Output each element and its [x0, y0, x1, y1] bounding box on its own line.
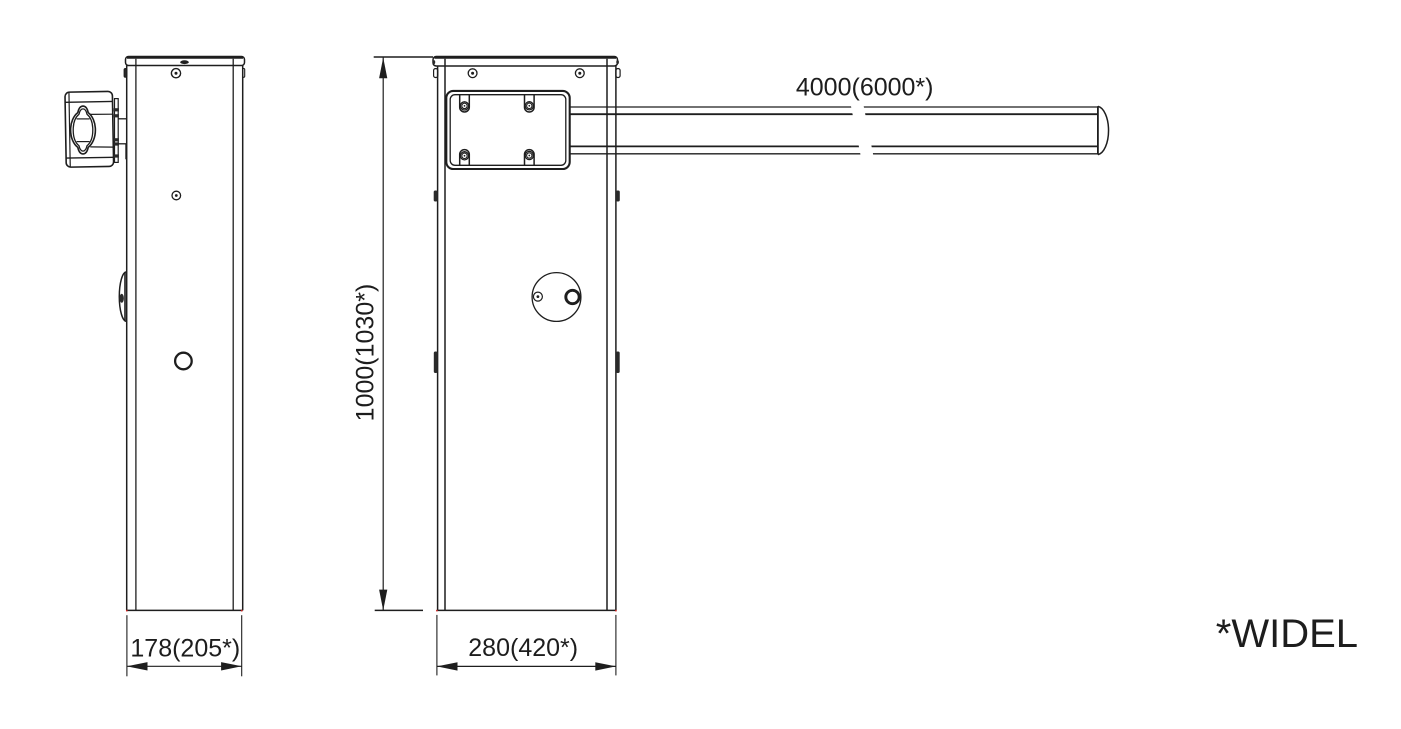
svg-text:178(205*): 178(205*)	[130, 634, 240, 662]
svg-text:4000(6000*): 4000(6000*)	[796, 74, 934, 102]
svg-text:1000(1030*): 1000(1030*)	[352, 284, 380, 422]
svg-text:*WIDEL: *WIDEL	[1216, 612, 1358, 656]
svg-text:280(420*): 280(420*)	[468, 634, 578, 662]
